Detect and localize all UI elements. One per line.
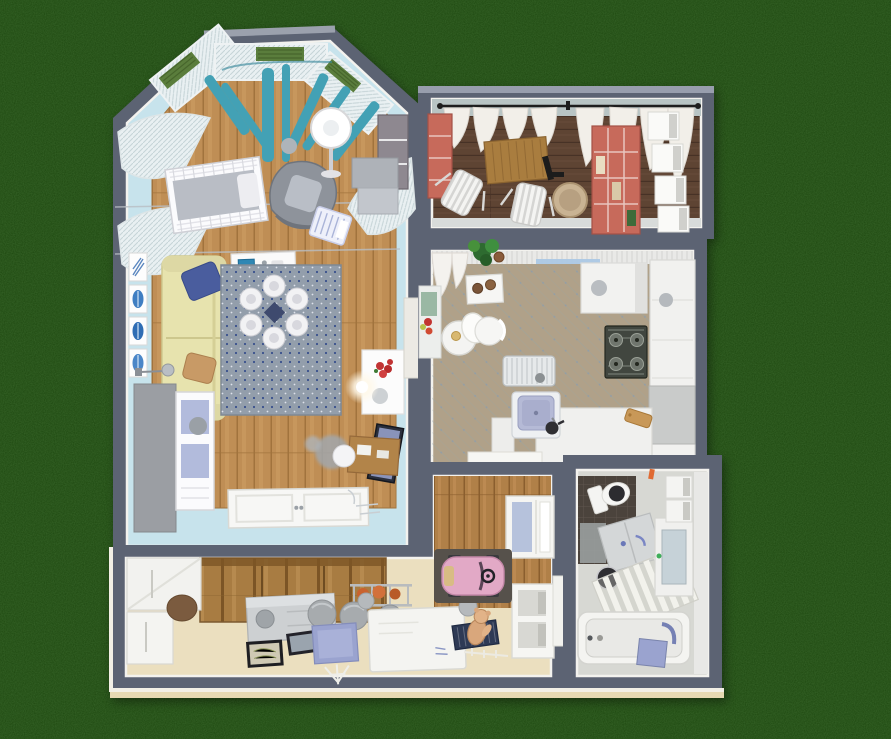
tall-white-cabinet[interactable] bbox=[581, 263, 647, 313]
kitchen-sink[interactable] bbox=[512, 392, 564, 438]
baby-crib[interactable] bbox=[165, 157, 268, 234]
wooden-bench[interactable] bbox=[484, 137, 549, 184]
room-balcony[interactable] bbox=[418, 86, 714, 239]
counter-right-column[interactable] bbox=[649, 260, 695, 468]
room-living[interactable] bbox=[113, 25, 438, 560]
car-seat bbox=[444, 566, 454, 586]
room-bathroom[interactable] bbox=[563, 455, 722, 690]
white-activity-desk[interactable] bbox=[368, 607, 466, 672]
small-pouf bbox=[305, 436, 321, 452]
kettle bbox=[546, 422, 559, 435]
floorplan-svg bbox=[0, 0, 891, 739]
doormat bbox=[167, 595, 197, 621]
balcony-wall-top-face bbox=[418, 86, 714, 93]
white-shelf-unit[interactable] bbox=[512, 584, 554, 658]
gas-cooktop[interactable] bbox=[605, 326, 647, 378]
tall-gray-cabinet[interactable] bbox=[134, 384, 176, 532]
outer-ledge-left bbox=[109, 547, 113, 692]
outer-ledge-bottom bbox=[110, 688, 724, 692]
gray-ball-1[interactable] bbox=[358, 593, 374, 609]
floorplan-canvas bbox=[0, 0, 891, 739]
glass-front-cabinet[interactable] bbox=[506, 496, 554, 558]
hanging-ornament bbox=[189, 417, 207, 435]
apartment bbox=[109, 25, 724, 698]
radiator[interactable] bbox=[503, 356, 555, 386]
serving-table[interactable] bbox=[466, 274, 503, 304]
coral-shelving[interactable] bbox=[592, 126, 640, 234]
vanity-mirror[interactable] bbox=[655, 518, 693, 596]
side-counter-fruit[interactable] bbox=[419, 286, 441, 358]
desk-chair[interactable] bbox=[333, 445, 355, 467]
outer-trim-bottom bbox=[110, 692, 724, 698]
pink-toy-car[interactable] bbox=[434, 549, 512, 603]
room-kitchen[interactable] bbox=[418, 237, 707, 480]
bathroom-right-wall-face bbox=[694, 472, 708, 674]
wicker-basket[interactable] bbox=[553, 183, 587, 217]
double-door[interactable] bbox=[228, 488, 369, 528]
curtain-ball bbox=[281, 138, 297, 154]
display-cabinet[interactable] bbox=[176, 392, 214, 510]
glowing-lamp-core bbox=[356, 381, 368, 393]
